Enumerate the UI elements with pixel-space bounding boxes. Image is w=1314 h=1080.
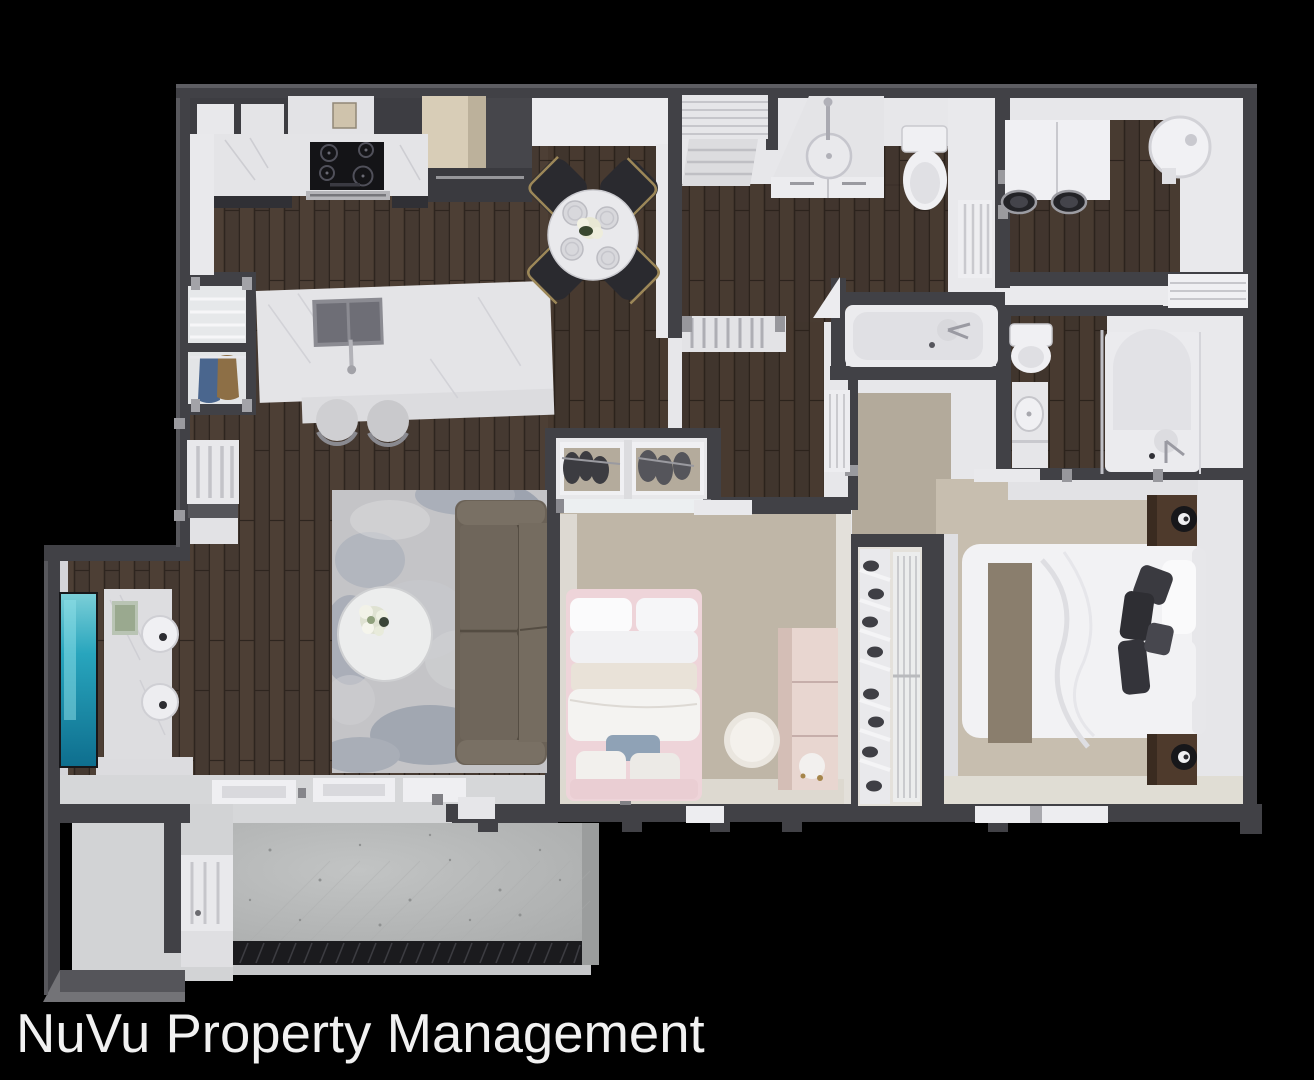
svg-text:NuVu Property Management: NuVu Property Management	[16, 1003, 705, 1064]
